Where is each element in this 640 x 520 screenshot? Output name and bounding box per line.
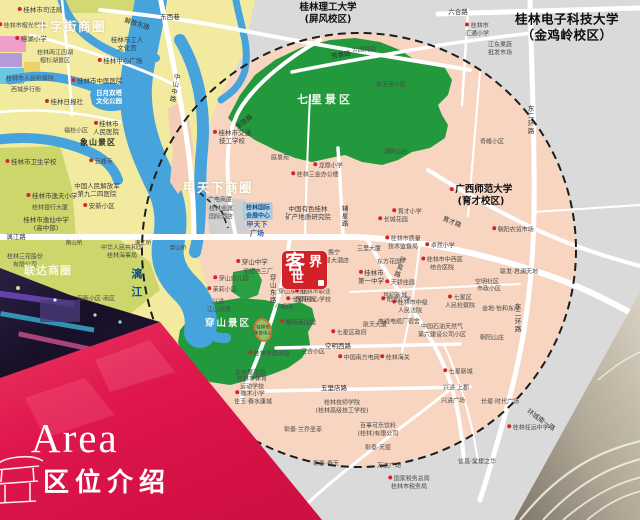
- location-map-page: 桂林市司法局桂林市榕光学校十字街商圈解放东路东西巷榕湖小学桂林市工人 文化宫桂林…: [0, 0, 640, 520]
- map-gray-triangle: [205, 195, 250, 237]
- project-logo-marker: 客 界 世: [282, 251, 327, 289]
- map-block: [24, 62, 40, 73]
- map-block: [0, 53, 22, 67]
- logo-char: 界: [309, 256, 322, 269]
- logo-seal-icon: [318, 280, 324, 286]
- logo-char: 世: [291, 272, 304, 285]
- map-block: [0, 36, 26, 52]
- logo-char: 客: [285, 252, 305, 272]
- expo-center-block: [244, 203, 272, 219]
